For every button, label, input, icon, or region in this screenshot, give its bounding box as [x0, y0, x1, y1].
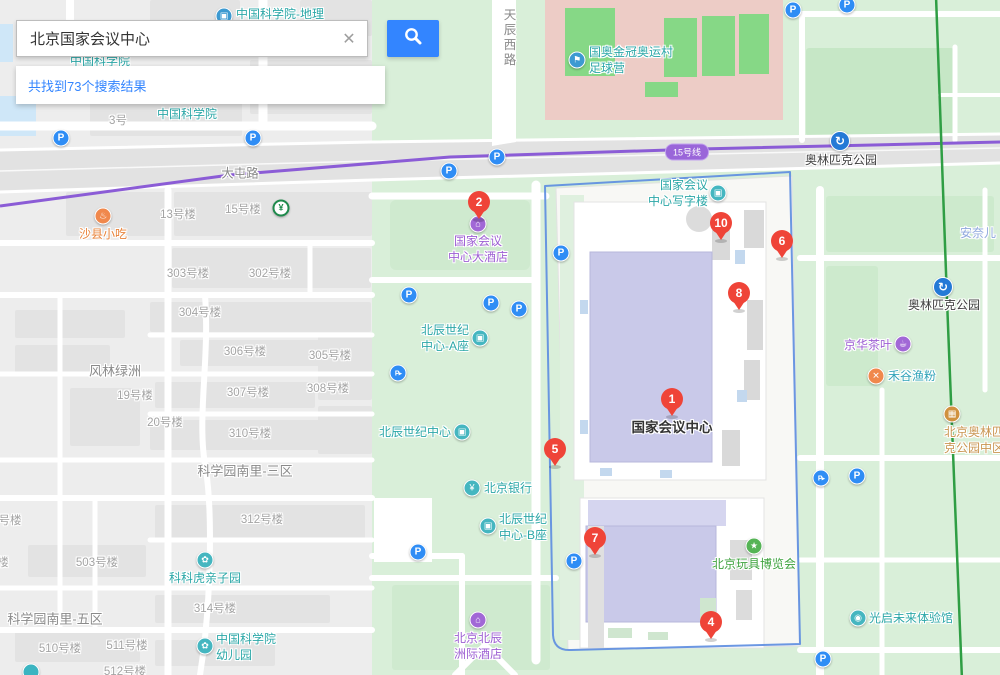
marker-7[interactable]: 7 [584, 527, 606, 549]
guangqi-future-hall-icon[interactable]: ◉ [850, 610, 867, 627]
ncc-office-tower-label[interactable]: 国家会议中心写字楼 [648, 177, 708, 209]
road-label-0: 大屯路 [221, 163, 259, 182]
abc-bank-icon[interactable]: ¥ [273, 200, 290, 217]
building-label-5: 304号楼 [179, 304, 221, 320]
parking-icon-7[interactable]: P [401, 287, 418, 304]
clear-search-icon[interactable]: ✕ [335, 21, 363, 56]
kekehu-kids-park-label[interactable]: 科科虎亲子园 [169, 570, 241, 586]
marker-10[interactable]: 10 [710, 212, 732, 234]
building-label-7: 305号楼 [309, 347, 351, 363]
search-results-count[interactable]: 共找到73个搜索结果 [16, 76, 146, 95]
parking-icon-4[interactable]: P [553, 245, 570, 262]
olympic-park-station-se-label[interactable]: 奥林匹克公园 [908, 297, 980, 313]
magnifier-icon [403, 26, 423, 51]
hegu-fish-noodle-icon[interactable]: ✕ [868, 368, 885, 385]
olympic-park-station-nw-label[interactable]: 奥林匹克公园 [805, 152, 877, 168]
building-label-15: 314号楼 [194, 600, 236, 616]
building-label-12: 20号楼 [147, 414, 183, 430]
jinghua-tea-icon[interactable]: ☕ [895, 336, 912, 353]
building-label-6: 306号楼 [224, 343, 266, 359]
toy-expo-label[interactable]: 北京玩具博览会 [712, 556, 796, 572]
intercontinental-hotel-icon[interactable]: ⌂ [470, 612, 487, 629]
building-label-1: 13号楼 [160, 206, 196, 222]
beichen-century-center-label[interactable]: 北辰世纪中心 [379, 424, 451, 440]
ncc-office-tower-icon[interactable]: ▣ [710, 185, 727, 202]
search-button[interactable] [387, 20, 439, 57]
olympic-park-central-zone-label[interactable]: 北京奥林匹克公园中区 [944, 424, 1000, 456]
building-label-8: 307号楼 [227, 384, 269, 400]
parking-icon-0[interactable]: P [53, 130, 70, 147]
olympic-park-station-nw-icon[interactable]: ↻ [830, 131, 850, 151]
toy-expo-icon[interactable]: ★ [746, 538, 763, 555]
parking-icon-5[interactable]: P [785, 2, 802, 19]
parking-icon-8[interactable]: P [483, 295, 500, 312]
poi-partial-bottom-icon[interactable] [23, 664, 40, 675]
beichen-century-center-a-icon[interactable]: ▣ [472, 330, 489, 347]
building-label-3: 303号楼 [167, 265, 209, 281]
marker-2[interactable]: 2 [468, 191, 490, 213]
building-label-19: 号楼 [0, 512, 22, 528]
marker-8[interactable]: 8 [728, 282, 750, 304]
shaxian-snack-label[interactable]: 沙县小吃 [79, 226, 127, 242]
building-label-10: 310号楼 [229, 425, 271, 441]
building-label-17: 511号楼 [106, 637, 147, 653]
search-input[interactable] [17, 21, 348, 56]
building-label-2: 15号楼 [225, 201, 261, 217]
annai-er-label[interactable]: 安奈儿 [960, 225, 996, 241]
search-results-dropdown: 共找到73个搜索结果 [16, 66, 385, 104]
building-label-11: 19号楼 [117, 387, 153, 403]
guoao-soccer-camp-icon[interactable]: ⚑ [569, 52, 586, 69]
building-label-18: 512号楼 [104, 663, 146, 675]
parking-icon-13[interactable]: P [815, 651, 832, 668]
beichen-century-center-a-label[interactable]: 北辰世纪中心-A座 [421, 322, 469, 354]
beichen-century-center-icon[interactable]: ▣ [454, 424, 471, 441]
parking-icon-1[interactable]: P [245, 130, 262, 147]
parking-icon-2[interactable]: P [441, 163, 458, 180]
area-label-1: 科学园南里-三区 [197, 461, 292, 480]
beichen-century-center-b-label[interactable]: 北辰世纪中心-B座 [499, 511, 547, 543]
kekehu-kids-park-icon[interactable]: ✿ [197, 552, 214, 569]
parking-icon-11[interactable]: P [566, 553, 583, 570]
building-label-0: 3号 [109, 112, 127, 128]
subway-line-badge: 15号线 [665, 144, 709, 161]
guoao-soccer-camp-label[interactable]: 国奥金冠奥运村足球营 [589, 44, 673, 76]
map-canvas[interactable]: 15号线 3号13号楼15号楼303号楼302号楼304号楼306号楼305号楼… [0, 0, 1000, 675]
olympic-park-central-zone-icon[interactable]: ▦ [944, 406, 961, 423]
marker-6[interactable]: 6 [771, 230, 793, 252]
ncc-main-label-label[interactable]: 国家会议中心 [632, 420, 713, 436]
area-label-0: 风林绿洲 [89, 361, 141, 380]
building-label-4: 302号楼 [249, 265, 291, 281]
jinghua-tea-label[interactable]: 京华茶叶 [844, 337, 892, 353]
area-label-2: 科学园南里-五区 [7, 609, 102, 628]
bank-of-beijing-label[interactable]: 北京银行 [484, 480, 532, 496]
parking-entrance-icon-0[interactable]: P▸ [390, 365, 407, 382]
parking-icon-12[interactable]: P [849, 468, 866, 485]
intercontinental-hotel-label[interactable]: 北京北辰洲际酒店 [454, 630, 502, 662]
building-label-9: 308号楼 [307, 380, 349, 396]
marker-4[interactable]: 4 [700, 611, 722, 633]
ncc-grand-hotel-label[interactable]: 国家会议中心大酒店 [448, 233, 508, 265]
guangqi-future-hall-label[interactable]: 光启未来体验馆 [869, 610, 953, 626]
bank-of-beijing-icon[interactable]: ¥ [464, 480, 481, 497]
parking-icon-9[interactable]: P [511, 301, 528, 318]
cas-kindergarten-icon[interactable]: ✿ [197, 638, 214, 655]
hegu-fish-noodle-label[interactable]: 禾谷渔粉 [888, 368, 936, 384]
search-bar: ✕ [16, 20, 368, 57]
building-label-13: 312号楼 [241, 511, 283, 527]
beichen-century-center-b-icon[interactable]: ▣ [480, 518, 497, 535]
building-label-14: 503号楼 [76, 554, 118, 570]
cas-kindergarten-label[interactable]: 中国科学院幼儿园 [216, 631, 276, 663]
parking-icon-10[interactable]: P [410, 544, 427, 561]
parking-entrance-icon-1[interactable]: P▸ [813, 470, 830, 487]
parking-icon-3[interactable]: P [489, 149, 506, 166]
marker-5[interactable]: 5 [544, 438, 566, 460]
shaxian-snack-icon[interactable]: ♨ [95, 208, 112, 225]
building-label-16: 510号楼 [39, 640, 81, 656]
building-label-20: 楼 [0, 554, 9, 570]
olympic-park-station-se-icon[interactable]: ↻ [933, 277, 953, 297]
marker-1[interactable]: 1 [661, 388, 683, 410]
cas-institute-label[interactable]: 中国科学院 [157, 106, 217, 122]
road-label-1: 天 辰 西 路 [504, 8, 517, 68]
